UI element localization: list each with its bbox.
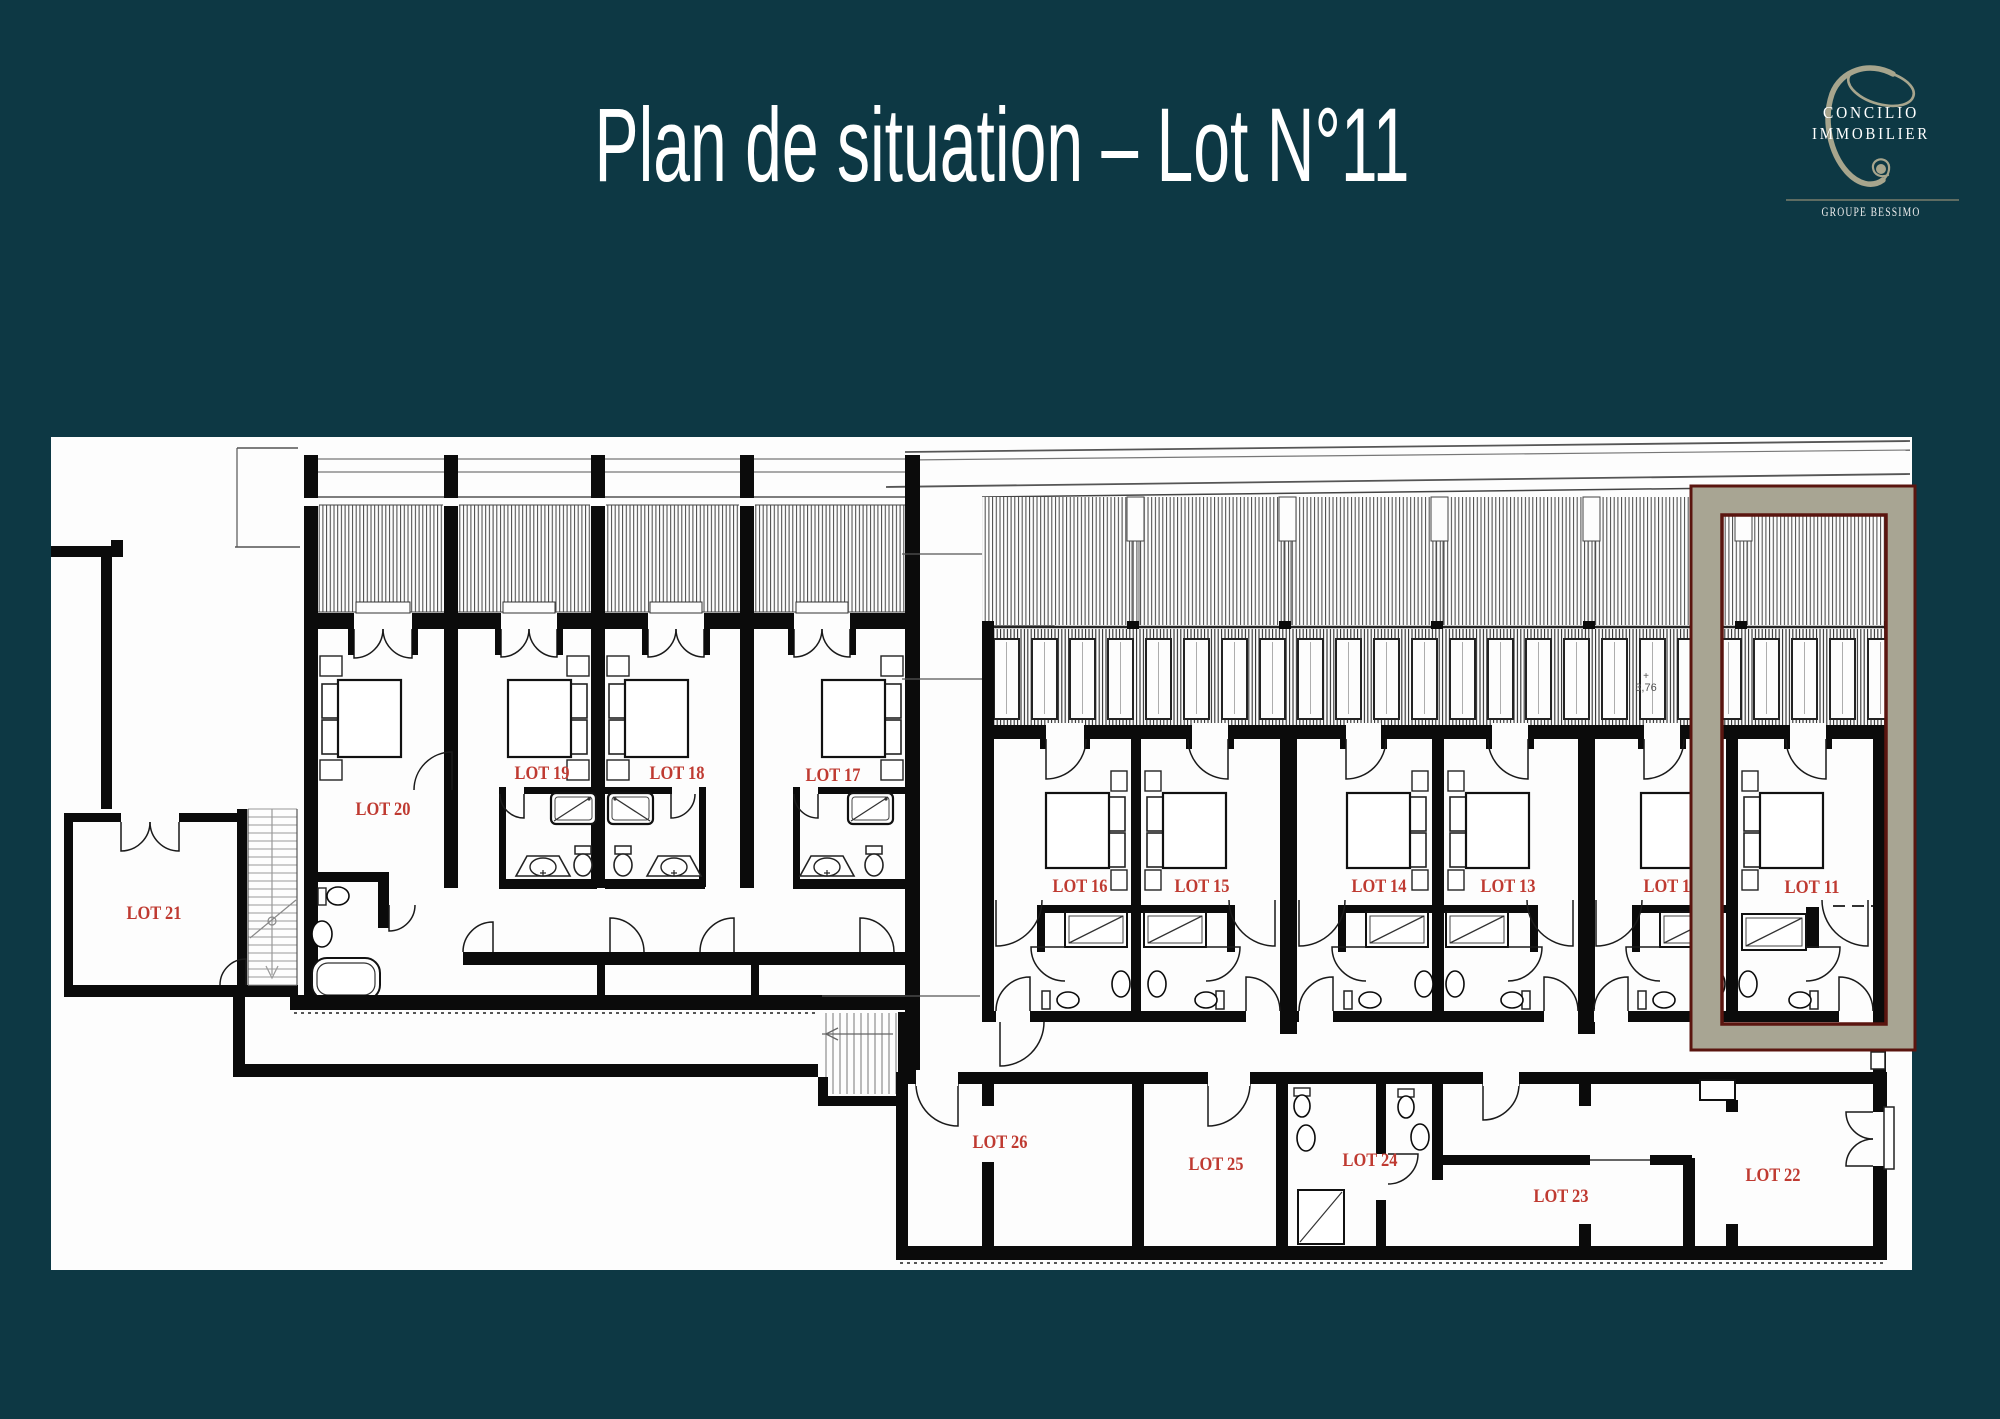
svg-text:LOT 26: LOT 26 bbox=[973, 1133, 1028, 1153]
svg-text:LOT 23: LOT 23 bbox=[1534, 1187, 1589, 1207]
svg-text:LOT 22: LOT 22 bbox=[1746, 1166, 1801, 1186]
svg-text:GROUPE BESSIMO: GROUPE BESSIMO bbox=[1822, 205, 1921, 219]
svg-text:LOT 14: LOT 14 bbox=[1352, 877, 1407, 897]
svg-text:LOT 21: LOT 21 bbox=[127, 904, 182, 924]
svg-text:LOT 13: LOT 13 bbox=[1481, 877, 1536, 897]
svg-text:LOT 25: LOT 25 bbox=[1189, 1155, 1244, 1175]
svg-text:LOT 18: LOT 18 bbox=[650, 764, 705, 784]
svg-text:CONCILIO: CONCILIO bbox=[1823, 103, 1919, 122]
svg-text:LOT 19: LOT 19 bbox=[515, 764, 570, 784]
svg-text:LOT 24: LOT 24 bbox=[1343, 1151, 1398, 1171]
svg-text:+: + bbox=[1643, 671, 1649, 682]
svg-text:LOT 15: LOT 15 bbox=[1175, 877, 1230, 897]
svg-text:3,76: 3,76 bbox=[1635, 682, 1656, 694]
svg-text:IMMOBILIER: IMMOBILIER bbox=[1812, 124, 1930, 143]
svg-text:Plan de situation – Lot N°11: Plan de situation – Lot N°11 bbox=[595, 87, 1410, 204]
svg-text:LOT 17: LOT 17 bbox=[806, 766, 861, 786]
svg-text:LOT 16: LOT 16 bbox=[1053, 877, 1108, 897]
svg-text:LOT 20: LOT 20 bbox=[356, 800, 411, 820]
svg-text:LOT 11: LOT 11 bbox=[1785, 878, 1840, 898]
